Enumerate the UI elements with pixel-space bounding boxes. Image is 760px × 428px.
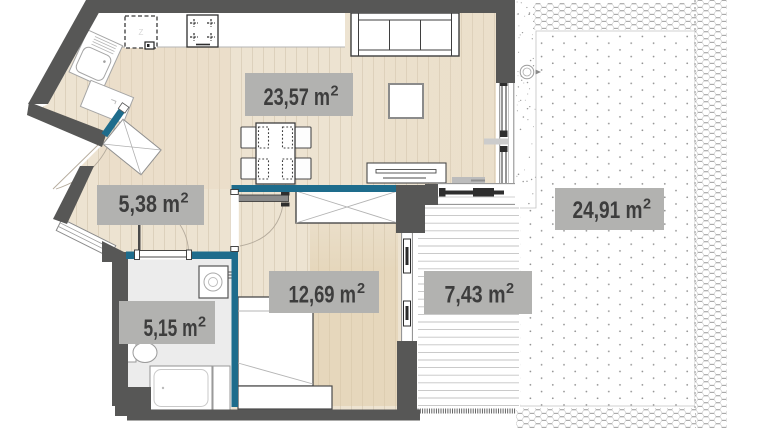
svg-text:24,91 m: 24,91 m [573,197,643,224]
svg-text:2: 2 [506,281,514,297]
svg-text:7,43 m: 7,43 m [445,282,506,309]
svg-text:12,69 m: 12,69 m [289,282,357,309]
svg-text:5,15 m: 5,15 m [144,315,198,342]
svg-text:2: 2 [181,191,189,207]
svg-text:5,38 m: 5,38 m [119,191,181,218]
svg-text:2: 2 [331,84,339,100]
svg-text:2: 2 [198,315,206,331]
svg-text:2: 2 [643,197,651,213]
svg-text:23,57 m: 23,57 m [264,84,331,111]
svg-text:2: 2 [357,281,365,297]
svg-text:Z: Z [139,28,144,37]
